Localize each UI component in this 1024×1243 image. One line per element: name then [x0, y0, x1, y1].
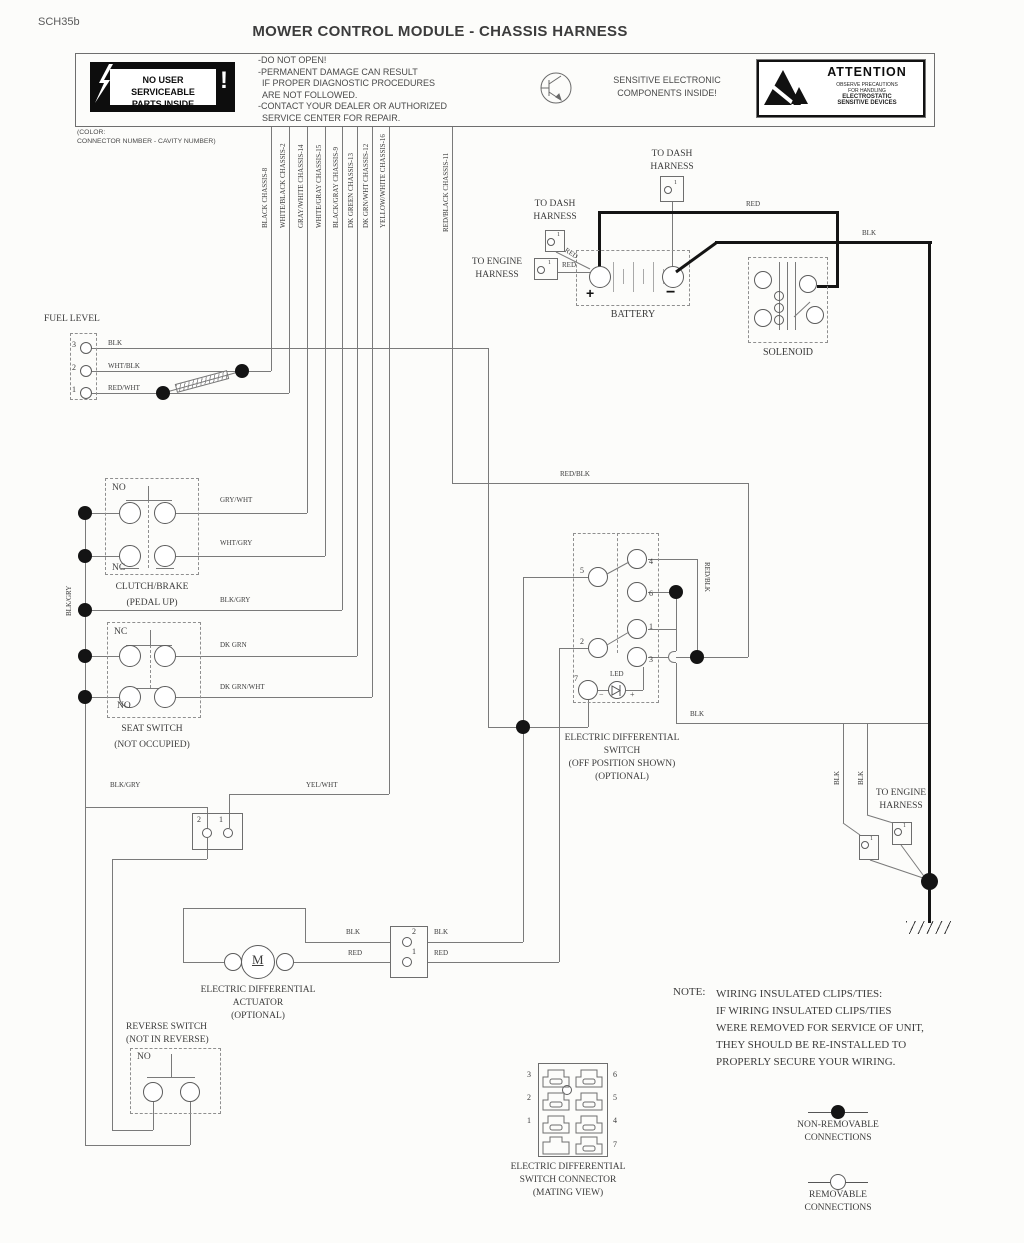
diagram-shape — [843, 823, 860, 835]
to-engine-harness-br-label: TO ENGINEHARNESS — [876, 787, 926, 813]
text-label: RED — [746, 201, 760, 209]
element: SEAT SWITCH — [114, 721, 190, 737]
text-label: 6 — [649, 590, 653, 599]
harness-wire-label: BLACK/GRAY CHASSIS-9 — [333, 147, 341, 228]
text-label: BLK/GRY — [66, 586, 74, 616]
element: CONNECTOR NUMBER - CAVITY NUMBER) — [77, 137, 216, 146]
text-label: GRY/WHT — [220, 497, 252, 505]
text-label: 2 — [580, 638, 584, 647]
wire-segment — [488, 348, 489, 727]
divider-dashed — [150, 645, 151, 688]
wire-segment — [305, 942, 390, 943]
terminal-circle — [627, 647, 647, 667]
wire-segment — [112, 859, 113, 1130]
wire-segment — [183, 908, 184, 962]
to-dash-harness-left-label: TO DASHHARNESS — [533, 198, 576, 224]
wire-segment — [148, 486, 149, 500]
divider-dashed — [148, 500, 149, 568]
wire-segment — [523, 727, 588, 728]
power-wire-segment — [715, 241, 932, 244]
wire-segment — [372, 127, 373, 697]
wire-segment — [307, 127, 308, 513]
diagram-shape — [867, 815, 893, 823]
terminal-circle — [119, 645, 141, 667]
harness-wire-label: BLACK CHASSIS-8 — [262, 168, 270, 228]
color-note: (COLOR: CONNECTOR NUMBER - CAVITY NUMBER… — [77, 128, 216, 146]
terminal-circle — [754, 309, 772, 327]
junction-dot — [78, 506, 92, 520]
wire-segment — [271, 127, 272, 371]
element: ELECTRIC DIFFERENTIAL — [511, 1161, 626, 1174]
element: CONNECTIONS — [797, 1132, 879, 1145]
power-wire-segment — [928, 241, 931, 923]
divider-dashed — [617, 533, 618, 653]
text-label: RED/BLK — [702, 562, 710, 592]
element: PARTS INSIDE — [110, 98, 216, 110]
text-label: RED — [348, 950, 362, 958]
terminal-circle — [562, 1085, 572, 1095]
element: THEY SHOULD BE RE-INSTALLED TO — [716, 1037, 924, 1054]
terminal-circle — [806, 306, 824, 324]
wire-segment — [305, 908, 306, 942]
element: HARNESS — [876, 800, 926, 813]
element: SWITCH CONNECTOR — [511, 1174, 626, 1187]
inline-resistor — [175, 370, 229, 393]
text-label: 5 — [580, 567, 584, 576]
terminal-circle — [627, 549, 647, 569]
text-label: 2 — [412, 928, 416, 937]
text-label: BLK — [862, 230, 876, 238]
mating-connector-box — [538, 1063, 608, 1157]
element: SWITCH — [565, 745, 680, 758]
mating-connector-label: ELECTRIC DIFFERENTIALSWITCH CONNECTOR(MA… — [511, 1161, 626, 1200]
wire-segment — [176, 656, 357, 657]
text-label: 6 — [613, 1071, 617, 1080]
text-label: 4 — [613, 1117, 617, 1126]
text-label: BLK — [858, 771, 866, 785]
wire-segment — [357, 127, 358, 656]
text-label: 7 — [574, 675, 578, 684]
terminal-circle — [588, 638, 608, 658]
wire-segment — [126, 500, 172, 501]
element: ARE NOT FOLLOWED. — [262, 90, 447, 102]
terminal-circle — [537, 266, 545, 274]
terminal-circle — [154, 645, 176, 667]
element: TO DASH — [533, 198, 576, 211]
element: (OPTIONAL) — [565, 771, 680, 784]
text-label: − — [666, 284, 675, 302]
terminal-circle — [80, 342, 92, 354]
wire-segment — [92, 348, 488, 349]
element: (OPTIONAL) — [201, 1010, 316, 1023]
element: -PERMANENT DAMAGE CAN RESULT — [258, 67, 447, 79]
element: IF PROPER DIAGNOSTIC PROCEDURES — [262, 78, 447, 90]
terminal-circle — [664, 186, 672, 194]
terminal-circle — [154, 502, 176, 524]
wire-segment — [867, 723, 868, 815]
wire-segment — [112, 859, 207, 860]
junction-dot — [921, 873, 938, 890]
terminal-circle — [547, 238, 555, 246]
wire-segment — [289, 127, 290, 393]
terminal-circle — [202, 828, 212, 838]
junction-dot — [78, 649, 92, 663]
harness-wire-label: GRAY/WHITE CHASSIS-14 — [298, 144, 306, 228]
junction-dot — [516, 720, 530, 734]
element: SENSITIVE DEVICES — [812, 100, 922, 106]
text-label: 1 — [527, 1117, 531, 1126]
text-label: BLK — [434, 929, 448, 937]
text-label: YEL/WHT — [306, 782, 338, 790]
wire-segment — [156, 568, 174, 569]
sensitive-note: SENSITIVE ELECTRONIC COMPONENTS INSIDE! — [613, 74, 721, 99]
no-user-serviceable-text: NO USER SERVICEABLE PARTS INSIDE — [110, 69, 216, 105]
terminal-circle — [754, 271, 772, 289]
element: WERE REMOVED FOR SERVICE OF UNIT, — [716, 1020, 924, 1037]
terminal-circle — [402, 957, 412, 967]
note-text: WIRING INSULATED CLIPS/TIES:IF WIRING IN… — [716, 986, 924, 1071]
terminal-circle — [608, 681, 626, 699]
element: ACTUATOR — [201, 997, 316, 1010]
diff-switch-label: ELECTRIC DIFFERENTIALSWITCH (OFF POSITIO… — [565, 732, 680, 784]
terminal-circle — [588, 567, 608, 587]
text-label: 1 — [557, 232, 560, 239]
text-label: 5 — [613, 1094, 617, 1103]
to-engine-harness-label: TO ENGINEHARNESS — [472, 256, 522, 282]
text-label: BLK — [690, 711, 704, 719]
text-label: RED — [562, 262, 576, 270]
text-label: 3 — [649, 656, 653, 665]
wire-segment — [697, 559, 698, 657]
text-label: 1 — [903, 823, 906, 830]
sheet-code: SCH35b — [38, 16, 80, 28]
text-label: DK GRN — [220, 642, 247, 650]
text-label: 1 — [870, 836, 873, 843]
wire-segment — [92, 393, 289, 394]
text-label: NO — [117, 701, 131, 711]
element: (NOT IN REVERSE) — [126, 1034, 209, 1047]
element: -CONTACT YOUR DEALER OR AUTHORIZED — [258, 101, 447, 113]
element: NO USER SERVICEABLE — [110, 74, 216, 98]
to-dash-harness-top-label: TO DASHHARNESS — [650, 148, 693, 174]
junction-dot — [235, 364, 249, 378]
harness-wire-label: YELLOW/WHITE CHASSIS-16 — [380, 134, 388, 228]
element: ELECTRIC DIFFERENTIAL — [565, 732, 680, 745]
text-label: BLK/GRY — [220, 597, 250, 605]
schematic-canvas: SCH35b MOWER CONTROL MODULE - CHASSIS HA… — [0, 0, 1024, 1243]
wire-segment — [294, 962, 390, 963]
wire-segment — [676, 663, 677, 723]
wire-segment — [748, 483, 749, 657]
diagram-shape — [901, 845, 926, 879]
text-label: 3 — [72, 341, 76, 350]
element: TO ENGINE — [876, 787, 926, 800]
wire-segment — [452, 483, 748, 484]
wire-segment — [85, 807, 207, 808]
battery-label: BATTERY — [611, 309, 655, 320]
terminal-circle — [774, 303, 784, 313]
solenoid-outline — [748, 257, 828, 343]
attention-title: ATTENTION — [812, 66, 922, 80]
text-label: 1 — [219, 816, 223, 825]
text-label: NO — [137, 1052, 151, 1062]
wire-segment — [428, 942, 523, 943]
wire-segment — [843, 723, 844, 823]
element: (MATING VIEW) — [511, 1187, 626, 1200]
wire-segment — [229, 794, 389, 795]
text-label: BLK — [108, 340, 122, 348]
warning-text: -DO NOT OPEN! -PERMANENT DAMAGE CAN RESU… — [258, 55, 447, 124]
terminal-circle — [80, 387, 92, 399]
text-label: WHT/BLK — [108, 363, 140, 371]
element: SENSITIVE ELECTRONIC — [613, 74, 721, 87]
wire-segment — [147, 1077, 195, 1078]
terminal-circle — [276, 953, 294, 971]
element: (PEDAL UP) — [116, 595, 189, 611]
junction-dot — [78, 549, 92, 563]
note-prefix: NOTE: — [673, 986, 705, 998]
terminal-circle — [627, 582, 647, 602]
junction-dot — [669, 585, 683, 599]
page-title: MOWER CONTROL MODULE - CHASSIS HARNESS — [252, 23, 627, 40]
legend-removable: REMOVABLECONNECTIONS — [804, 1189, 871, 1215]
text-label: 2 — [527, 1094, 531, 1103]
text-label: − — [599, 691, 604, 700]
wire-segment — [428, 962, 559, 963]
ground-symbol — [906, 921, 952, 934]
text-label: 1 — [548, 260, 551, 267]
text-label: NO — [112, 483, 126, 493]
text-label: + — [586, 286, 594, 301]
text-label: 4 — [649, 558, 653, 567]
wire-segment — [325, 127, 326, 556]
terminal-circle — [774, 291, 784, 301]
terminal-circle — [799, 275, 817, 293]
text-label: BLK/GRY — [110, 782, 140, 790]
harness-wire-label: DK GRN/WHT CHASSIS-12 — [363, 144, 371, 228]
element: (OFF POSITION SHOWN) — [565, 758, 680, 771]
terminal-circle — [143, 1082, 163, 1102]
wire-segment — [176, 697, 372, 698]
text-label: 1 — [72, 386, 76, 395]
terminal-circle — [894, 828, 902, 836]
terminal-circle — [180, 1082, 200, 1102]
junction-dot — [78, 690, 92, 704]
element: TO DASH — [650, 148, 693, 161]
element: REVERSE SWITCH — [126, 1021, 209, 1034]
harness-wire-label: DK GREEN CHASSIS-13 — [348, 153, 356, 228]
terminal-circle — [80, 365, 92, 377]
wire-segment — [676, 723, 930, 724]
removable-connection-symbol — [830, 1174, 846, 1190]
terminal-circle — [154, 686, 176, 708]
element: HARNESS — [533, 211, 576, 224]
terminal-circle — [223, 828, 233, 838]
reverse-switch-label: REVERSE SWITCH(NOT IN REVERSE) — [126, 1021, 209, 1047]
wire-segment — [171, 1054, 172, 1077]
element: ELECTRIC DIFFERENTIAL — [201, 984, 316, 997]
text-label: 1 — [412, 948, 416, 957]
non-removable-connection-symbol — [831, 1105, 845, 1119]
diagram-shape — [870, 860, 926, 879]
text-label: NC — [114, 627, 127, 637]
terminal-circle — [119, 502, 141, 524]
actuator-label: ELECTRIC DIFFERENTIALACTUATOR(OPTIONAL) — [201, 984, 316, 1023]
wire-segment — [559, 648, 560, 962]
text-label: 2 — [197, 816, 201, 825]
text-label: WHT/GRY — [220, 540, 252, 548]
element: (NOT OCCUPIED) — [114, 737, 190, 753]
element: (COLOR: — [77, 128, 216, 137]
text-label: 3 — [527, 1071, 531, 1080]
junction-dot — [156, 386, 170, 400]
element: CLUTCH/BRAKE — [116, 579, 189, 595]
terminal-circle — [861, 841, 869, 849]
motor-symbol: M — [252, 953, 264, 967]
fuel-level-title: FUEL LEVEL — [44, 314, 100, 324]
wire-segment — [523, 577, 524, 942]
text-label: LED — [610, 671, 624, 679]
wire-segment — [588, 700, 589, 727]
exclamation-icon: ! — [220, 68, 228, 94]
terminal-circle — [627, 619, 647, 639]
clutch-brake-label: CLUTCH/BRAKE(PEDAL UP) — [116, 579, 189, 611]
seat-switch-label: SEAT SWITCH(NOT OCCUPIED) — [114, 721, 190, 753]
text-label: 1 — [674, 180, 677, 187]
element: HARNESS — [650, 161, 693, 174]
text-label: 1 — [649, 623, 653, 632]
wire-segment — [389, 127, 390, 794]
text-label: 2 — [72, 364, 76, 373]
terminal-circle — [774, 315, 784, 325]
junction-dot — [78, 603, 92, 617]
wire-segment — [183, 962, 224, 963]
legend-non-removable: NON-REMOVABLECONNECTIONS — [797, 1119, 879, 1145]
wire-segment — [85, 1145, 190, 1146]
text-label: DK GRN/WHT — [220, 684, 265, 692]
element: TO ENGINE — [472, 256, 522, 269]
terminal-circle — [224, 953, 242, 971]
wire-segment — [150, 630, 151, 645]
element: WIRING INSULATED CLIPS/TIES: — [716, 986, 924, 1003]
terminal-circle — [402, 937, 412, 947]
element: -DO NOT OPEN! — [258, 55, 447, 67]
text-label: RED/WHT — [108, 385, 140, 393]
text-label: RED/BLK — [560, 471, 590, 479]
element: PROPERLY SECURE YOUR WIRING. — [716, 1054, 924, 1071]
element: IF WIRING INSULATED CLIPS/TIES — [716, 1003, 924, 1020]
element: NON-REMOVABLE — [797, 1119, 879, 1132]
terminal-circle — [578, 680, 598, 700]
text-label: BLK — [346, 929, 360, 937]
text-label: BLK — [834, 771, 842, 785]
wire-segment — [342, 127, 343, 610]
text-label: NC — [112, 563, 125, 573]
text-label: 7 — [613, 1141, 617, 1150]
solenoid-label: SOLENOID — [763, 347, 813, 358]
power-wire-segment — [598, 211, 839, 214]
attention-lines: OBSERVE PRECAUTIONS FOR HANDLING ELECTRO… — [812, 82, 922, 106]
wire-segment — [452, 127, 453, 483]
element: REMOVABLE — [804, 1189, 871, 1202]
terminal-circle — [154, 545, 176, 567]
wire-segment — [183, 908, 305, 909]
wire-segment — [676, 592, 677, 651]
harness-wire-label: WHITE/BLACK CHASSIS-2 — [280, 143, 288, 228]
actuator-connector-box — [390, 926, 428, 978]
text-label: RED — [434, 950, 448, 958]
harness-wire-label: RED/BLACK CHASSIS-11 — [443, 153, 451, 232]
text-label: + — [630, 691, 635, 700]
element: SERVICE CENTER FOR REPAIR. — [262, 113, 447, 125]
harness-wire-label: WHITE/GRAY CHASSIS-15 — [316, 145, 324, 228]
power-wire-segment — [836, 211, 839, 288]
element: HARNESS — [472, 269, 522, 282]
wire-segment — [112, 1130, 153, 1131]
junction-dot — [690, 650, 704, 664]
element: CONNECTIONS — [804, 1202, 871, 1215]
wire-crossover — [668, 651, 676, 663]
element: COMPONENTS INSIDE! — [613, 87, 721, 100]
